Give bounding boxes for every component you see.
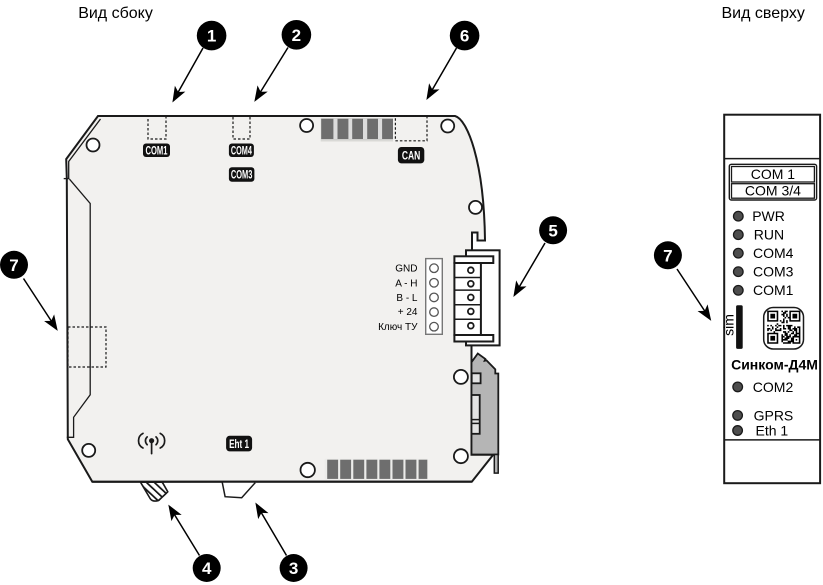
svg-text:COM 3/4: COM 3/4	[745, 183, 801, 199]
svg-text:COM2: COM2	[753, 379, 794, 395]
svg-text:COM 1: COM 1	[751, 166, 796, 182]
svg-text:2: 2	[292, 26, 301, 45]
svg-text:7: 7	[663, 246, 672, 265]
svg-text:COM1: COM1	[146, 143, 168, 157]
svg-text:Ключ ТУ: Ключ ТУ	[378, 322, 418, 333]
svg-text:Синком-Д4М: Синком-Д4М	[731, 357, 818, 373]
svg-text:Вид сбоку: Вид сбоку	[78, 5, 153, 22]
svg-text:PWR: PWR	[752, 208, 785, 224]
svg-text:3: 3	[289, 559, 298, 578]
svg-text:COM4: COM4	[231, 143, 252, 157]
svg-text:COM4: COM4	[753, 245, 794, 261]
svg-text:4: 4	[202, 559, 212, 578]
svg-text:CAN: CAN	[402, 149, 421, 163]
svg-text:RUN: RUN	[754, 227, 784, 243]
svg-text:1: 1	[207, 27, 216, 46]
svg-text:A - H: A - H	[395, 278, 417, 289]
svg-text:+ 24: + 24	[398, 307, 418, 318]
svg-text:6: 6	[460, 27, 469, 46]
svg-text:7: 7	[9, 256, 18, 275]
svg-text:sim: sim	[720, 314, 736, 336]
svg-text:GND: GND	[395, 263, 417, 274]
svg-text:Вид сверху: Вид сверху	[722, 5, 805, 22]
svg-text:Eth 1: Eth 1	[756, 423, 789, 439]
svg-text:GPRS: GPRS	[754, 407, 794, 423]
svg-text:COM3: COM3	[231, 168, 253, 182]
svg-text:Eht 1: Eht 1	[229, 437, 249, 451]
svg-text:B - L: B - L	[396, 293, 418, 304]
svg-text:5: 5	[548, 221, 557, 240]
svg-text:COM1: COM1	[753, 282, 794, 298]
svg-text:COM3: COM3	[753, 264, 794, 280]
